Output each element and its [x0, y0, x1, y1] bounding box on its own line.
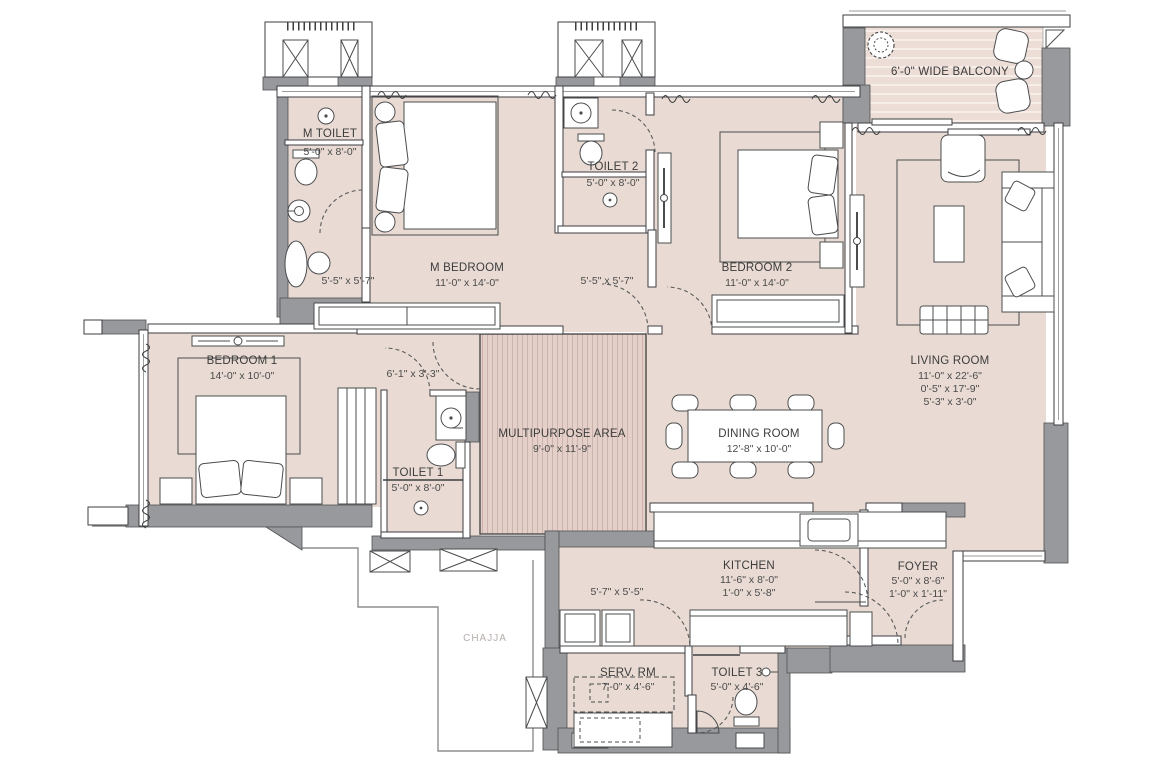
m-bedroom-bed	[372, 96, 498, 235]
armchair	[941, 135, 985, 182]
label-multipurpose: MULTIPURPOSE AREA	[498, 428, 625, 440]
label-toilet1: TOILET 1	[392, 467, 443, 479]
appliance	[602, 610, 634, 646]
dim-living-2: 0'-5" x 17'-9"	[921, 383, 980, 395]
bench	[920, 306, 988, 334]
label-foyer: FOYER	[898, 561, 939, 573]
dim-kitchen-pass: 5'-7" x 5'-5"	[591, 586, 644, 598]
duct-shaft-middle	[558, 22, 655, 77]
balcony-chair	[992, 27, 1030, 65]
m-bedroom-wardrobe	[314, 303, 500, 329]
tall-unit	[850, 612, 872, 646]
dim-foyer-2: 1'-0" x 1'-11"	[889, 588, 947, 600]
dim-bedroom2: 11'-0" x 14'-0"	[725, 277, 789, 289]
dim-living-3: 5'-3" x 3'-0"	[924, 396, 977, 408]
coffee-table	[934, 206, 964, 262]
balcony-table	[1015, 61, 1033, 79]
stool	[308, 252, 330, 274]
label-balcony: 6'-0" WIDE BALCONY	[891, 66, 1009, 78]
label-chajja: CHAJJA	[463, 633, 507, 644]
balcony-chair	[994, 77, 1031, 114]
bedroom2-wardrobe	[712, 295, 844, 327]
dim-bedroom1: 14'-0" x 10'-0"	[210, 370, 275, 382]
label-m-bedroom: M BEDROOM	[430, 262, 504, 274]
dim-toilet3: 5'-0" x 4'-6"	[711, 681, 764, 693]
bedroom2-tv-console	[658, 153, 671, 243]
appliance	[560, 610, 600, 646]
tv-console	[850, 195, 864, 287]
dresser-counter	[285, 241, 307, 287]
dim-foyer-1: 5'-0" x 8'-6"	[892, 575, 945, 587]
dim-dining: 12'-8" x 10'-0"	[727, 443, 792, 455]
label-kitchen: KITCHEN	[723, 560, 775, 572]
sofa	[1002, 172, 1054, 312]
dim-passage: 6'-1" x 3'-3"	[387, 368, 440, 380]
plant	[868, 32, 894, 58]
dim-toilet2: 5'-0" x 8'-0"	[587, 177, 640, 189]
balcony-door-marker	[1046, 30, 1064, 48]
label-bedroom2: BEDROOM 2	[722, 262, 793, 274]
dim-kitchen-2: 1'-0" x 5'-8"	[723, 587, 776, 599]
label-bedroom1: BEDROOM 1	[207, 355, 278, 367]
floor-plan-drawing: M TOILET 5'-0" x 8'-0" 5'-5" x 5'-7" M B…	[0, 0, 1154, 776]
dim-m-toilet: 5'-0" x 8'-0"	[304, 146, 357, 158]
dim-toilet1: 5'-0" x 8'-0"	[392, 482, 445, 494]
dim-living-1: 11'-0" x 22'-6"	[918, 370, 982, 382]
bedroom1-wardrobe	[338, 388, 376, 504]
label-serv-rm: SERV. RM	[600, 667, 656, 679]
dim-kitchen-1: 11'-6" x 8'-0"	[720, 574, 778, 586]
dim-dress2: 5'-5" x 5'-7"	[581, 275, 634, 287]
room-toilet2-floor	[558, 93, 656, 332]
label-toilet3: TOILET 3	[711, 667, 762, 679]
label-living: LIVING ROOM	[911, 355, 990, 367]
dim-multipurpose: 9'-0" x 11'-9"	[533, 443, 591, 455]
dim-m-dress: 5'-5" x 5'-7"	[322, 275, 375, 287]
dim-m-bedroom: 11'-0" x 14'-0"	[435, 277, 499, 289]
floor-plan-page: M TOILET 5'-0" x 8'-0" 5'-5" x 5'-7" M B…	[0, 0, 1154, 776]
label-m-toilet: M TOILET	[303, 128, 357, 140]
label-dining: DINING ROOM	[718, 428, 799, 440]
label-toilet2: TOILET 2	[587, 161, 638, 173]
duct-shaft-left	[265, 22, 372, 77]
dim-serv-rm: 7'-0" x 4'-6"	[602, 681, 655, 693]
